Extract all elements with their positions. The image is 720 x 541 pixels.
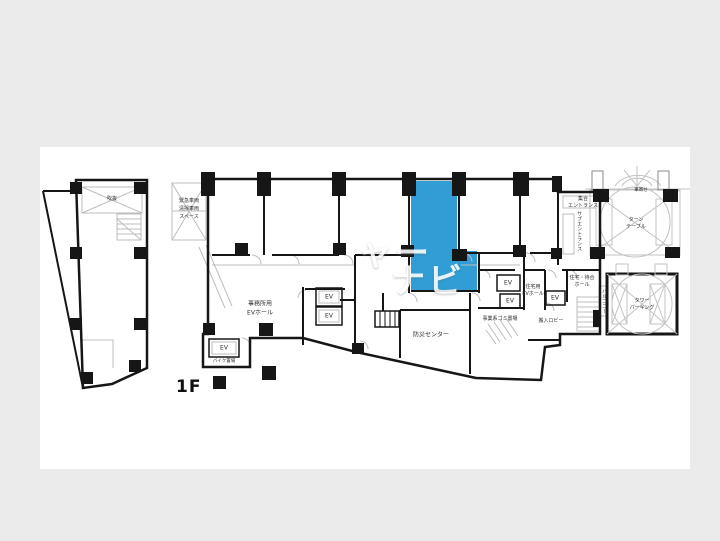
floor-label: 1F xyxy=(176,377,201,397)
tower-parking-area xyxy=(607,264,677,334)
screenshot-stage: 吹抜 緊急車両 清掃車両 スペース 事務所用 EVホール EV EV EV EV… xyxy=(0,0,720,541)
watermark-text-part2: ナビ xyxy=(391,254,465,303)
outer-walls xyxy=(43,179,600,388)
